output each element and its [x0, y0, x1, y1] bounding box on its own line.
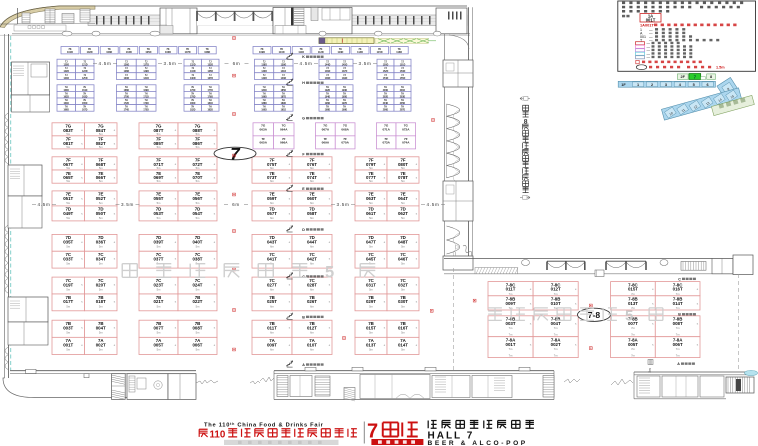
svg-text:109D: 109D: [259, 51, 265, 54]
svg-text:002T: 002T: [96, 343, 106, 348]
svg-text:125D: 125D: [82, 78, 88, 80]
svg-text:070A: 070A: [341, 141, 349, 145]
svg-text:3: 3: [665, 83, 667, 87]
svg-text:027T: 027T: [267, 282, 277, 287]
svg-text:7H: 7H: [65, 107, 68, 109]
svg-text:013T: 013T: [366, 343, 376, 348]
svg-text:7H: 7H: [326, 100, 329, 102]
svg-text:136D: 136D: [190, 78, 196, 80]
svg-text:046T: 046T: [398, 256, 408, 261]
svg-text:7H: 7H: [384, 107, 387, 109]
svg-text:7H: 7H: [145, 87, 148, 89]
svg-text:7H: 7H: [125, 87, 128, 89]
svg-text:C: C: [678, 277, 681, 281]
svg-text:7H: 7H: [125, 100, 128, 102]
svg-text:A: A: [677, 362, 680, 366]
svg-text:073A: 073A: [382, 141, 390, 145]
svg-text:004T: 004T: [96, 325, 106, 330]
svg-text:A: A: [302, 363, 305, 367]
svg-text:5m: 5m: [648, 368, 652, 373]
svg-text:003T: 003T: [63, 325, 73, 330]
svg-text:022T: 022T: [192, 299, 202, 304]
svg-text:7H: 7H: [65, 100, 68, 102]
svg-text:7H: 7H: [65, 93, 68, 95]
svg-text:2F: 2F: [680, 75, 685, 79]
svg-text:7H: 7H: [209, 100, 212, 102]
svg-text:115D: 115D: [377, 51, 383, 54]
svg-text:7H: 7H: [191, 100, 194, 102]
svg-text:112D: 112D: [318, 51, 324, 54]
svg-text:047T: 047T: [366, 240, 376, 245]
svg-text:7: 7: [230, 145, 241, 164]
svg-text:006T: 006T: [673, 342, 683, 347]
svg-text:149D: 149D: [342, 77, 348, 80]
svg-text:7H: 7H: [326, 93, 329, 95]
svg-text:041T: 041T: [267, 256, 277, 261]
svg-text:064T: 064T: [398, 196, 408, 201]
svg-text:3.5m: 3.5m: [163, 61, 176, 66]
svg-text:K: K: [302, 55, 305, 59]
svg-text:068A: 068A: [341, 128, 349, 132]
svg-text:7H: 7H: [191, 93, 194, 95]
svg-text:7H: 7H: [401, 107, 404, 109]
svg-text:7H: 7H: [65, 87, 68, 89]
svg-text:183D: 183D: [208, 110, 214, 112]
svg-text:063T: 063T: [366, 196, 376, 201]
svg-text:111D: 111D: [298, 51, 304, 54]
svg-text:113D: 113D: [337, 51, 343, 54]
svg-text:105D: 105D: [145, 51, 151, 54]
svg-text:B: B: [302, 315, 305, 319]
svg-text:066A: 066A: [280, 141, 288, 145]
svg-text:7H: 7H: [384, 100, 387, 102]
svg-text:7H: 7H: [343, 100, 346, 102]
svg-text:002T: 002T: [551, 342, 561, 347]
svg-text:198D: 198D: [325, 110, 331, 112]
svg-text:071A: 071A: [382, 128, 390, 132]
svg-text:7H: 7H: [145, 100, 148, 102]
svg-text:7H: 7H: [263, 100, 266, 102]
svg-text:042T: 042T: [307, 256, 317, 261]
svg-text:101D: 101D: [67, 51, 73, 54]
svg-text:023T: 023T: [153, 282, 163, 287]
svg-text:7H: 7H: [191, 107, 194, 109]
svg-text:014T: 014T: [398, 343, 408, 348]
svg-text:108D: 108D: [204, 51, 210, 54]
svg-text:033T: 033T: [63, 256, 73, 261]
svg-text:016T: 016T: [398, 325, 408, 330]
svg-text:038T: 038T: [192, 256, 202, 261]
svg-text:7H: 7H: [125, 93, 128, 95]
svg-text:064A: 064A: [280, 128, 288, 132]
svg-text:012T: 012T: [551, 287, 561, 292]
svg-text:175D: 175D: [143, 110, 149, 112]
svg-text:036T: 036T: [96, 240, 106, 245]
svg-text:7H: 7H: [401, 100, 404, 102]
svg-text:7H: 7H: [209, 87, 212, 89]
svg-text:142D: 142D: [261, 77, 267, 80]
svg-text:155D: 155D: [400, 78, 406, 80]
svg-text:167D: 167D: [82, 110, 88, 112]
svg-text:7H: 7H: [343, 93, 346, 95]
svg-text:7H: 7H: [401, 87, 404, 89]
svg-text:7H: 7H: [263, 107, 266, 109]
svg-text:207D: 207D: [400, 110, 406, 112]
svg-text:005T: 005T: [628, 342, 638, 347]
svg-text:The 110th China Food & Drinks: The 110th China Food & Drinks Fair: [204, 422, 324, 429]
svg-text:7H: 7H: [83, 87, 86, 89]
svg-text:107D: 107D: [185, 51, 191, 54]
svg-text:021T: 021T: [153, 299, 163, 304]
svg-text:7H: 7H: [83, 107, 86, 109]
svg-text:003T: 003T: [506, 321, 516, 326]
svg-text:166D: 166D: [64, 110, 70, 112]
svg-text:035T: 035T: [63, 240, 73, 245]
svg-text:5: 5: [625, 308, 633, 325]
svg-text:154D: 154D: [383, 77, 389, 80]
svg-text:199D: 199D: [342, 110, 348, 112]
svg-text:040T: 040T: [192, 240, 202, 245]
svg-text:3.5m: 3.5m: [121, 202, 134, 207]
svg-text:114D: 114D: [357, 51, 363, 54]
svg-text:013T: 013T: [628, 301, 638, 306]
svg-text:053T: 053T: [153, 211, 163, 216]
svg-text:4.5m: 4.5m: [37, 202, 50, 207]
svg-text:062T: 062T: [398, 211, 408, 216]
svg-text:060T: 060T: [307, 196, 317, 201]
svg-text:7H: 7H: [209, 93, 212, 95]
svg-text:5: 5: [325, 264, 334, 282]
svg-text:001T: 001T: [506, 342, 516, 347]
svg-text:—: —: [647, 55, 651, 59]
svg-text:8: 8: [710, 75, 712, 79]
svg-text:014T: 014T: [673, 301, 683, 306]
svg-text:103D: 103D: [106, 51, 112, 54]
svg-text:7H: 7H: [209, 107, 212, 109]
svg-text:056T: 056T: [192, 196, 202, 201]
svg-text:004T: 004T: [551, 321, 561, 326]
svg-text:049T: 049T: [63, 211, 73, 216]
svg-text:7H: 7H: [401, 93, 404, 95]
svg-text:7H: 7H: [343, 87, 346, 89]
svg-text:015T: 015T: [628, 287, 638, 292]
svg-text:4.5m: 4.5m: [299, 61, 312, 66]
svg-text:7H: 7H: [83, 100, 86, 102]
svg-text:5: 5: [693, 83, 695, 87]
svg-text:7H: 7H: [125, 107, 128, 109]
svg-text:190D: 190D: [261, 110, 267, 112]
svg-text:007T: 007T: [153, 325, 163, 330]
svg-text:130D: 130D: [124, 78, 130, 80]
svg-text:106D: 106D: [165, 51, 171, 54]
svg-text:137D: 137D: [208, 78, 214, 80]
svg-text:6: 6: [707, 83, 709, 87]
svg-text:020T: 020T: [96, 282, 106, 287]
svg-text:008T: 008T: [673, 321, 683, 326]
svg-text:7H: 7H: [263, 87, 266, 89]
svg-text:059T: 059T: [267, 196, 277, 201]
svg-text:7H: 7H: [326, 107, 329, 109]
svg-text:148D: 148D: [325, 77, 331, 80]
svg-text:028T: 028T: [307, 282, 317, 287]
svg-text:018T: 018T: [96, 299, 106, 304]
svg-text:6m: 6m: [233, 61, 241, 66]
svg-text:7-8: 7-8: [588, 310, 601, 320]
svg-text:069A: 069A: [322, 141, 330, 145]
svg-text:015T: 015T: [366, 325, 376, 330]
svg-text:110: 110: [210, 429, 226, 440]
svg-text:4.5m: 4.5m: [426, 202, 439, 207]
svg-text:7H: 7H: [83, 93, 86, 95]
svg-text:2: 2: [651, 83, 653, 87]
svg-text:4.5m: 4.5m: [98, 61, 111, 66]
svg-text:026T: 026T: [307, 299, 317, 304]
svg-text:206D: 206D: [383, 110, 389, 112]
svg-text:045T: 045T: [366, 256, 376, 261]
svg-text:7H: 7H: [282, 87, 285, 89]
svg-text:7H: 7H: [282, 107, 285, 109]
svg-text:6m: 6m: [232, 202, 240, 207]
svg-text:019T: 019T: [63, 282, 73, 287]
svg-text:043T: 043T: [267, 240, 277, 245]
svg-text:010T: 010T: [307, 343, 317, 348]
svg-text:054T: 054T: [192, 211, 202, 216]
svg-text:B: B: [678, 313, 681, 317]
svg-text:074A: 074A: [402, 141, 410, 145]
svg-text:031T: 031T: [366, 282, 376, 287]
svg-text:7H: 7H: [384, 93, 387, 95]
svg-text:055T: 055T: [153, 196, 163, 201]
svg-text:005T: 005T: [153, 343, 163, 348]
svg-text:1: 1: [637, 83, 639, 87]
svg-text:067A: 067A: [322, 128, 330, 132]
svg-text:7H: 7H: [263, 93, 266, 95]
svg-text:143D: 143D: [281, 77, 287, 80]
svg-text:7H: 7H: [343, 107, 346, 109]
svg-text:1.5m: 1.5m: [716, 66, 725, 70]
svg-text:009T: 009T: [506, 301, 516, 306]
svg-text:G: G: [302, 117, 305, 121]
svg-text:116D: 116D: [396, 51, 402, 54]
svg-text:061T: 061T: [366, 211, 376, 216]
svg-text:048T: 048T: [398, 240, 408, 245]
svg-text:102D: 102D: [87, 51, 93, 54]
svg-text:006T: 006T: [192, 343, 202, 348]
svg-text:1F: 1F: [621, 83, 626, 87]
svg-text:057T: 057T: [267, 211, 277, 216]
svg-text:052T: 052T: [96, 196, 106, 201]
svg-text:7H: 7H: [145, 107, 148, 109]
svg-text:001T: 001T: [63, 343, 73, 348]
svg-text:174D: 174D: [124, 109, 130, 112]
svg-text:7H: 7H: [145, 93, 148, 95]
svg-text:7H: 7H: [384, 87, 387, 89]
svg-text:7H: 7H: [191, 87, 194, 89]
svg-text:025T: 025T: [267, 299, 277, 304]
svg-text:044T: 044T: [307, 240, 317, 245]
svg-text:124D: 124D: [64, 77, 70, 80]
svg-text:009T: 009T: [267, 343, 277, 348]
svg-text:072A: 072A: [402, 128, 410, 132]
svg-text:050T: 050T: [96, 211, 106, 216]
svg-text:032T: 032T: [398, 282, 408, 287]
svg-text:058T: 058T: [307, 211, 317, 216]
svg-text:7H: 7H: [326, 87, 329, 89]
svg-text:063A: 063A: [260, 128, 268, 132]
svg-text:182D: 182D: [190, 110, 196, 112]
svg-text:BEER & ALCO-POP: BEER & ALCO-POP: [428, 440, 528, 446]
svg-text:016T: 016T: [673, 287, 683, 292]
svg-text:051T: 051T: [63, 196, 73, 201]
svg-text:011T: 011T: [506, 287, 516, 292]
svg-text:008T: 008T: [192, 325, 202, 330]
svg-text:037T: 037T: [153, 256, 163, 261]
svg-text:131D: 131D: [143, 78, 149, 80]
svg-text:3.5m: 3.5m: [358, 61, 371, 66]
svg-text:030T: 030T: [398, 299, 408, 304]
svg-text:011T: 011T: [267, 325, 277, 330]
svg-text:H: H: [302, 81, 305, 85]
svg-text:017T: 017T: [63, 299, 73, 304]
svg-text:010T: 010T: [551, 301, 561, 306]
svg-text:7H: 7H: [282, 100, 285, 102]
svg-text:029T: 029T: [366, 299, 376, 304]
svg-text:3.5m: 3.5m: [336, 202, 349, 207]
svg-text:D: D: [302, 228, 305, 232]
svg-text:191D: 191D: [281, 110, 287, 112]
svg-text:065A: 065A: [260, 141, 268, 145]
svg-text:7H: 7H: [282, 93, 285, 95]
svg-text:110D: 110D: [279, 51, 285, 54]
svg-text:039T: 039T: [153, 240, 163, 245]
svg-text:024T: 024T: [192, 282, 202, 287]
svg-text:104D: 104D: [126, 51, 132, 54]
svg-text:034T: 034T: [96, 256, 106, 261]
svg-text:1A001T: 1A001T: [640, 23, 654, 28]
svg-text:012T: 012T: [307, 325, 317, 330]
